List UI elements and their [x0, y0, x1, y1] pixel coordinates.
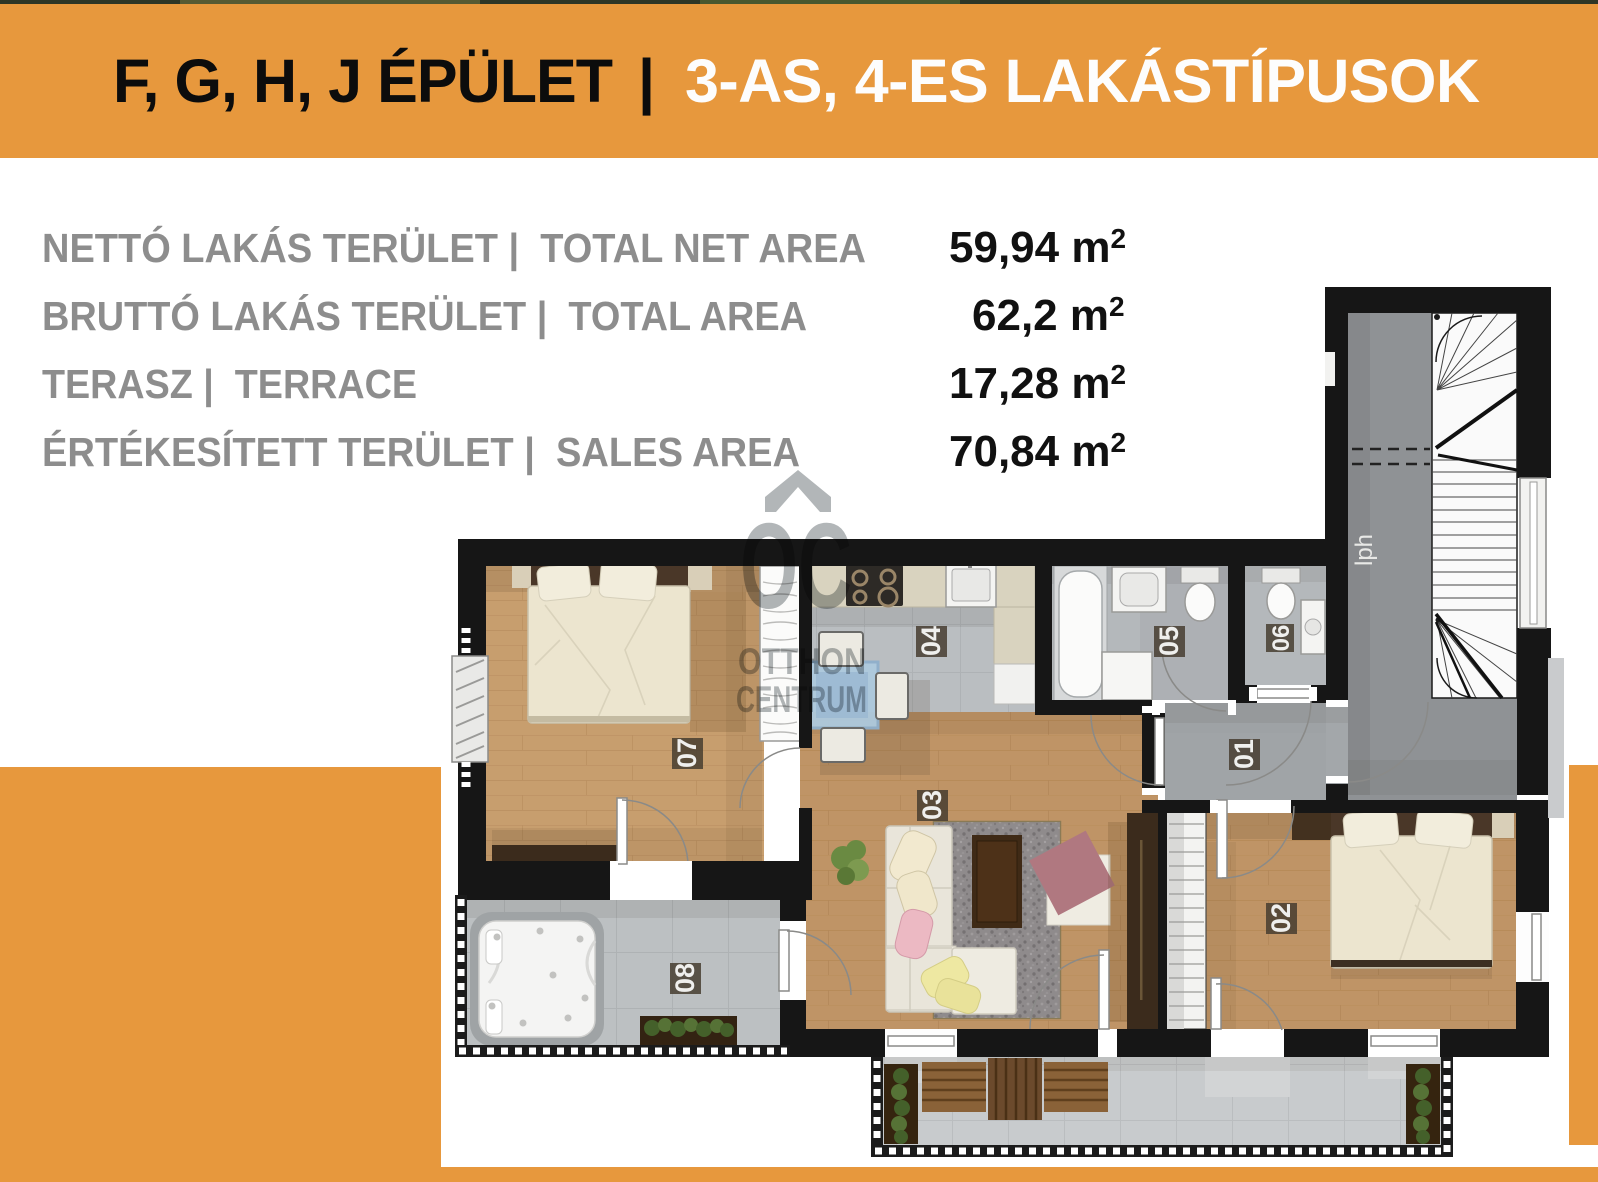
svg-text:TERASZ | TERRACE: TERASZ | TERRACE [42, 361, 417, 407]
svg-text:70,84 m2: 70,84 m2 [949, 427, 1126, 476]
svg-text:04: 04 [916, 626, 946, 656]
svg-text:lph: lph [1351, 534, 1378, 566]
svg-text:3-AS, 4-ES LAKÁSTÍPUSOK: 3-AS, 4-ES LAKÁSTÍPUSOK [685, 47, 1480, 115]
svg-text:OTTHON: OTTHON [738, 641, 866, 682]
svg-text:05: 05 [1154, 626, 1184, 656]
svg-text:F, G, H, J ÉPÜLET: F, G, H, J ÉPÜLET [113, 47, 613, 115]
svg-text:ÉRTÉKESÍTETT TERÜLET | SALES: ÉRTÉKESÍTETT TERÜLET | SALES AREA [42, 429, 800, 475]
svg-text:01: 01 [1229, 739, 1259, 769]
svg-text:06: 06 [1268, 625, 1295, 652]
svg-text:03: 03 [917, 790, 947, 820]
svg-text:17,28 m2: 17,28 m2 [949, 359, 1126, 408]
svg-text:BRUTTÓ LAKÁS TERÜLET | TOTAL: BRUTTÓ LAKÁS TERÜLET | TOTAL AREA [42, 293, 807, 339]
svg-text:62,2 m2: 62,2 m2 [972, 291, 1125, 340]
svg-text:08: 08 [670, 963, 700, 993]
svg-text:59,94 m2: 59,94 m2 [949, 223, 1126, 272]
svg-text:02: 02 [1266, 903, 1296, 933]
svg-text:07: 07 [672, 738, 702, 768]
svg-text:CENTRUM: CENTRUM [736, 679, 867, 720]
svg-text:OC: OC [740, 498, 852, 634]
svg-text:NETTÓ LAKÁS TERÜLET | TOTAL N: NETTÓ LAKÁS TERÜLET | TOTAL NET AREA [42, 225, 866, 271]
svg-text:|: | [638, 47, 655, 117]
